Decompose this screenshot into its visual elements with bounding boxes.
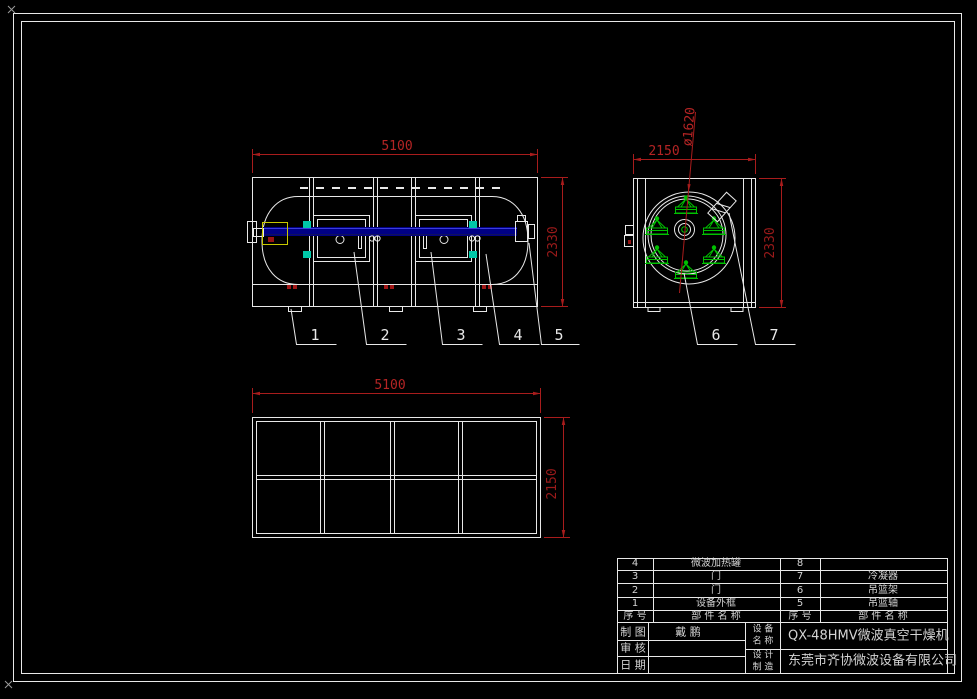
part-no: 5 xyxy=(797,599,803,609)
part-name: 吊篮轴 xyxy=(868,599,898,609)
maker-label: 设 计 xyxy=(753,652,774,661)
end-callout-leaders xyxy=(684,213,796,345)
drawing-canvas[interactable]: 5100 2330 1 2 3 4 5 xyxy=(0,0,977,699)
hanging-baskets xyxy=(645,195,726,278)
part-name: 冷凝器 xyxy=(868,572,898,582)
part-no: 7 xyxy=(797,572,803,582)
front-view xyxy=(248,178,538,312)
part-no: 1 xyxy=(632,599,638,609)
support-rollers xyxy=(287,285,492,289)
header-name: 部 件 名 称 xyxy=(858,612,908,622)
header-name: 部 件 名 称 xyxy=(691,612,741,622)
condenser-port xyxy=(708,192,736,222)
part-no: 6 xyxy=(797,586,803,596)
top-view xyxy=(253,418,541,538)
bearing-end-right xyxy=(516,216,535,242)
callout-4: 4 xyxy=(513,326,522,344)
header-no: 序 号 xyxy=(788,612,811,622)
callout-7: 7 xyxy=(769,326,778,344)
microwave-port-dashes xyxy=(300,187,500,189)
door-left xyxy=(314,216,370,262)
shaft-couplings xyxy=(369,236,480,241)
part-name: 设备外框 xyxy=(696,599,736,609)
callout-6: 6 xyxy=(711,326,720,344)
front-dim-height: 2330 xyxy=(546,226,561,257)
part-no: 2 xyxy=(632,586,638,596)
drawn-value: 戴 鹏 xyxy=(675,627,701,638)
callout-5: 5 xyxy=(554,326,563,344)
device-name: QX-48HMV微波真空干燥机 xyxy=(788,630,949,643)
basket-top xyxy=(674,195,698,213)
cad-drawing-sheet: 5100 2330 1 2 3 4 5 xyxy=(0,0,977,699)
header-no: 序 号 xyxy=(623,612,646,622)
check-label: 审 核 xyxy=(620,643,646,654)
maker-label: 制 造 xyxy=(753,664,774,673)
part-name: 微波加热罐 xyxy=(691,559,741,569)
frame-feet xyxy=(289,307,487,312)
shaft-brackets xyxy=(303,221,477,258)
end-dim-height: 2330 xyxy=(763,227,778,258)
top-dim-depth: 2150 xyxy=(545,468,560,499)
part-name: 门 xyxy=(711,586,721,596)
date-label: 日 期 xyxy=(620,660,646,671)
callout-1: 1 xyxy=(310,326,319,344)
front-dim-width: 5100 xyxy=(381,139,412,154)
end-dim-diameter: ø1620 xyxy=(680,107,698,147)
callout-2: 2 xyxy=(380,326,389,344)
part-no: 4 xyxy=(632,559,638,569)
drawn-label: 制 图 xyxy=(620,627,646,638)
callout-3: 3 xyxy=(456,326,465,344)
device-label: 名 称 xyxy=(753,638,774,647)
top-dimensions xyxy=(253,388,571,538)
sheet-border xyxy=(14,14,962,682)
top-dim-width: 5100 xyxy=(374,378,405,393)
hinge-left xyxy=(625,226,634,247)
door-right xyxy=(416,216,472,262)
company-name: 东莞市齐协微波设备有限公司 xyxy=(788,655,957,668)
front-callout-leaders xyxy=(291,243,580,345)
part-name: 吊篮架 xyxy=(868,586,898,596)
basket-lower-right xyxy=(702,245,726,263)
part-no: 8 xyxy=(797,559,803,569)
part-no: 3 xyxy=(632,572,638,582)
basket-shaft xyxy=(263,227,517,236)
part-name: 门 xyxy=(711,572,721,582)
end-dim-width: 2150 xyxy=(648,144,679,159)
device-label: 设 备 xyxy=(753,626,774,635)
